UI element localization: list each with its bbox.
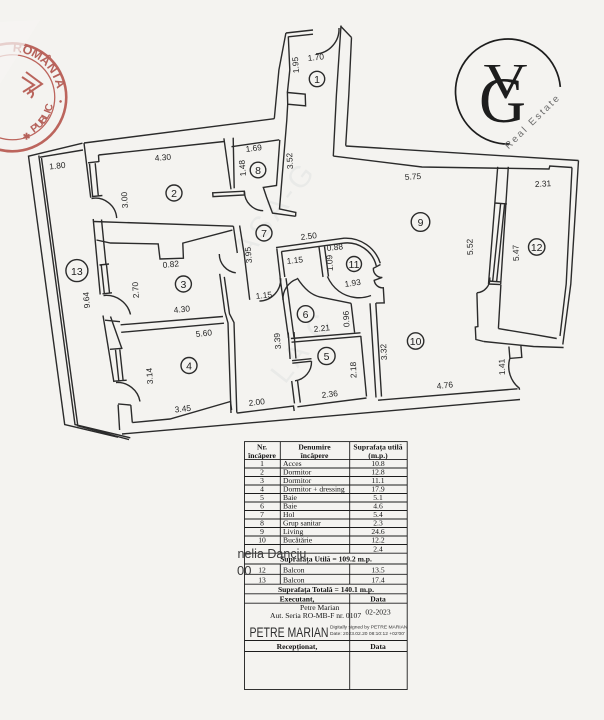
svg-text:2.36: 2.36 bbox=[321, 388, 339, 400]
svg-text:13: 13 bbox=[71, 266, 83, 278]
svg-text:5.47: 5.47 bbox=[510, 244, 521, 261]
svg-text:11: 11 bbox=[349, 259, 360, 271]
svg-text:V: V bbox=[483, 54, 527, 110]
svg-text:3.95: 3.95 bbox=[243, 246, 254, 263]
svg-text:4.30: 4.30 bbox=[173, 303, 191, 315]
svg-text:0.96: 0.96 bbox=[341, 310, 352, 327]
svg-text:Recepționat,: Recepționat, bbox=[277, 642, 318, 651]
svg-text:12: 12 bbox=[258, 565, 266, 574]
svg-text:Bucătărie: Bucătărie bbox=[283, 536, 313, 545]
svg-text:2.00: 2.00 bbox=[248, 396, 266, 408]
svg-text:3.45: 3.45 bbox=[174, 403, 192, 415]
svg-text:2.4: 2.4 bbox=[373, 545, 383, 554]
svg-text:02-2023: 02-2023 bbox=[365, 608, 391, 617]
svg-text:Digitally signed by PETRE MARI: Digitally signed by PETRE MARIAN bbox=[330, 625, 408, 631]
svg-text:12: 12 bbox=[531, 242, 543, 254]
svg-text:1.80: 1.80 bbox=[49, 160, 67, 172]
svg-text:3.14: 3.14 bbox=[144, 367, 155, 384]
svg-text:1.95: 1.95 bbox=[290, 56, 301, 73]
svg-text:2.50: 2.50 bbox=[300, 230, 318, 242]
svg-text:1.15: 1.15 bbox=[255, 289, 273, 301]
svg-text:17.4: 17.4 bbox=[371, 575, 384, 584]
svg-text:✱: ✱ bbox=[23, 132, 31, 142]
svg-text:2.18: 2.18 bbox=[348, 361, 359, 378]
svg-text:Balcon: Balcon bbox=[283, 575, 305, 584]
svg-text:9.64: 9.64 bbox=[81, 291, 92, 308]
svg-text:2.70: 2.70 bbox=[130, 281, 141, 298]
svg-text:încăpere: încăpere bbox=[300, 451, 329, 460]
svg-text:2: 2 bbox=[171, 188, 177, 200]
svg-text:8: 8 bbox=[255, 165, 261, 177]
svg-text:1.15: 1.15 bbox=[286, 254, 304, 266]
svg-text:1.48: 1.48 bbox=[237, 159, 248, 176]
svg-text:3: 3 bbox=[180, 279, 186, 291]
svg-text:13.5: 13.5 bbox=[371, 565, 384, 574]
svg-text:3.00: 3.00 bbox=[119, 191, 130, 208]
svg-text:4: 4 bbox=[186, 360, 192, 372]
svg-text:1: 1 bbox=[314, 74, 320, 86]
svg-text:3.52: 3.52 bbox=[284, 152, 295, 169]
svg-text:2.31: 2.31 bbox=[535, 178, 552, 189]
svg-text:7: 7 bbox=[261, 228, 267, 240]
svg-text:Data: Data bbox=[370, 642, 386, 651]
svg-text:5.60: 5.60 bbox=[195, 327, 213, 339]
svg-text:13: 13 bbox=[258, 575, 266, 584]
svg-text:5.52: 5.52 bbox=[464, 238, 475, 255]
svg-text:nelia Danciu: nelia Danciu bbox=[238, 547, 307, 561]
svg-text:9: 9 bbox=[418, 217, 424, 229]
svg-text:Executant,: Executant, bbox=[280, 594, 315, 603]
svg-text:Data: Data bbox=[370, 594, 386, 603]
svg-text:1.69: 1.69 bbox=[245, 142, 263, 154]
svg-text:0.88: 0.88 bbox=[326, 241, 344, 253]
svg-text:3.32: 3.32 bbox=[378, 343, 389, 360]
svg-text:PETRE MARIAN: PETRE MARIAN bbox=[250, 624, 329, 640]
svg-text:1.41: 1.41 bbox=[496, 358, 507, 375]
svg-text:2.21: 2.21 bbox=[313, 322, 331, 334]
svg-text:4.76: 4.76 bbox=[436, 379, 454, 391]
svg-text:5: 5 bbox=[324, 351, 330, 363]
svg-text:5.75: 5.75 bbox=[404, 171, 421, 182]
svg-text:3.39: 3.39 bbox=[272, 332, 283, 349]
svg-text:1.09: 1.09 bbox=[324, 254, 335, 271]
svg-text:4.30: 4.30 bbox=[154, 152, 171, 163]
svg-text:Date: 2023.02.20 08:10:12 +02': Date: 2023.02.20 08:10:12 +02'00' bbox=[330, 631, 405, 637]
svg-text:1.70: 1.70 bbox=[307, 51, 325, 63]
svg-text:0.82: 0.82 bbox=[162, 258, 180, 270]
svg-text:6: 6 bbox=[303, 309, 309, 321]
svg-text:10: 10 bbox=[258, 536, 266, 545]
svg-text:Balcon: Balcon bbox=[283, 565, 305, 574]
svg-text:10: 10 bbox=[410, 336, 422, 348]
svg-text:Suprafața Totală = 140.1 m.p.: Suprafața Totală = 140.1 m.p. bbox=[278, 585, 374, 594]
svg-text:00: 00 bbox=[237, 563, 251, 578]
svg-text:Aut. Seria RO-MB-F nr. 0107: Aut. Seria RO-MB-F nr. 0107 bbox=[270, 611, 361, 620]
svg-text:12.2: 12.2 bbox=[371, 536, 384, 545]
